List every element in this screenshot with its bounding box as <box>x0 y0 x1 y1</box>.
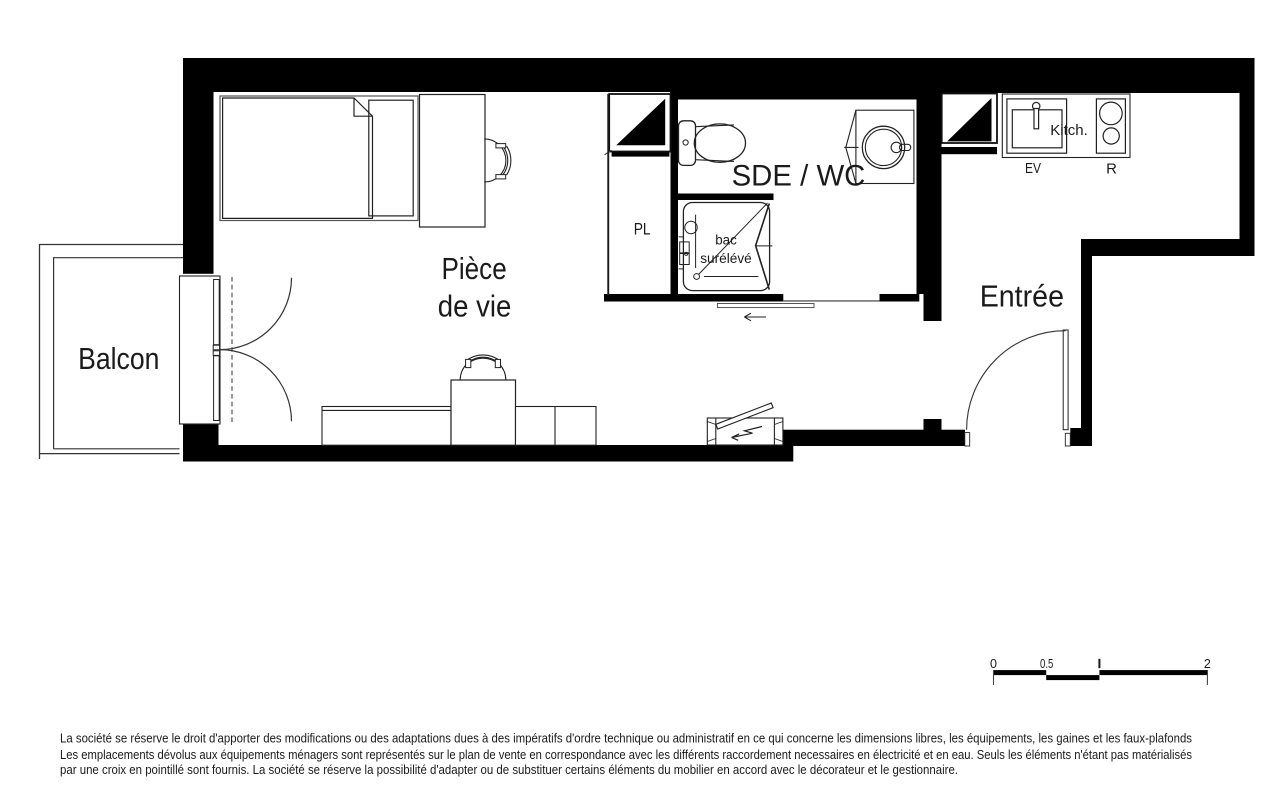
svg-text:EV: EV <box>1025 160 1041 177</box>
svg-text:La société se réserve le droit: La société se réserve le droit d'apporte… <box>60 731 1192 745</box>
svg-text:0.5: 0.5 <box>1040 657 1053 671</box>
svg-text:surélévé: surélévé <box>700 251 752 266</box>
svg-text:2: 2 <box>1204 657 1211 671</box>
svg-text:de vie: de vie <box>438 289 512 324</box>
svg-text:par une croix en pointillé son: par une croix en pointillé sont fournis.… <box>60 763 958 777</box>
svg-text:Kitch.: Kitch. <box>1050 122 1088 139</box>
svg-text:R: R <box>1106 161 1117 178</box>
svg-text:Balcon: Balcon <box>78 341 159 376</box>
svg-text:bac: bac <box>715 233 737 248</box>
svg-text:PL: PL <box>634 221 651 239</box>
svg-text:Pièce: Pièce <box>442 251 507 286</box>
svg-text:SDE / WC: SDE / WC <box>732 160 866 193</box>
svg-text:Entrée: Entrée <box>980 279 1064 314</box>
svg-text:Les emplacements dévolus aux é: Les emplacements dévolus aux équipements… <box>60 748 1192 762</box>
svg-text:0: 0 <box>990 657 997 671</box>
